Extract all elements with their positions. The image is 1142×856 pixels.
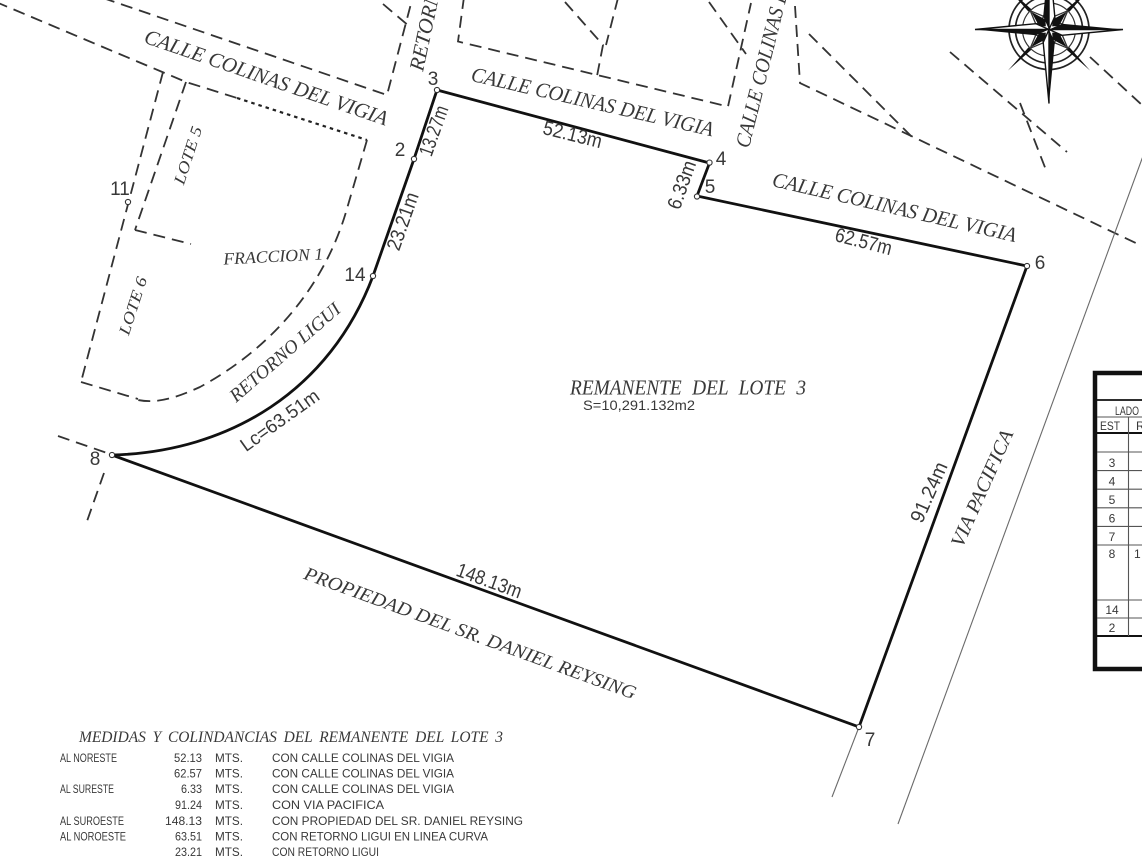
svg-text:13.27m: 13.27m <box>415 103 453 159</box>
svg-text:CON CALLE COLINAS DEL VIGIA: CON CALLE COLINAS DEL VIGIA <box>272 784 454 796</box>
svg-text:CON RETORNO LIGUI EN LINEA CUR: CON RETORNO LIGUI EN LINEA CURVA <box>272 832 488 844</box>
svg-text:3: 3 <box>1109 456 1116 470</box>
svg-text:CALLE COLINAS DEL VIGIA: CALLE COLINAS DEL VIGIA <box>770 167 1019 247</box>
svg-text:MTS.: MTS. <box>215 816 243 828</box>
svg-text:LADO: LADO <box>1115 404 1139 418</box>
svg-text:52.13: 52.13 <box>174 753 202 765</box>
svg-text:23.21: 23.21 <box>175 847 202 856</box>
svg-text:CON VIA PACIFICA: CON VIA PACIFICA <box>272 800 384 812</box>
svg-text:52.13m: 52.13m <box>541 117 605 153</box>
svg-text:S=10,291.132m2: S=10,291.132m2 <box>583 397 695 413</box>
svg-text:62.57: 62.57 <box>174 769 202 781</box>
svg-text:MTS.: MTS. <box>215 784 243 796</box>
svg-text:63.51: 63.51 <box>175 832 202 844</box>
svg-text:REMANENTE DEL LOTE 3: REMANENTE DEL LOTE 3 <box>569 376 806 400</box>
svg-text:LOTE 5: LOTE 5 <box>171 124 206 187</box>
svg-text:CON RETORNO LIGUI: CON RETORNO LIGUI <box>272 847 379 856</box>
svg-text:MTS.: MTS. <box>215 800 243 812</box>
svg-text:6.33: 6.33 <box>181 784 202 796</box>
svg-text:CALLE COLINAS DE: CALLE COLINAS DE <box>730 0 796 150</box>
svg-text:MTS.: MTS. <box>215 769 243 781</box>
svg-text:MEDIDAS Y COLINDANCIAS DEL REM: MEDIDAS Y COLINDANCIAS DEL REMANENTE DEL… <box>78 729 503 746</box>
svg-text:4: 4 <box>1109 475 1116 489</box>
svg-text:14: 14 <box>1105 603 1119 617</box>
svg-text:R: R <box>1136 419 1142 433</box>
svg-text:LOTE 6: LOTE 6 <box>116 275 151 338</box>
svg-text:AL SUROESTE: AL SUROESTE <box>60 816 124 828</box>
svg-text:7: 7 <box>865 730 876 751</box>
svg-text:148.13m: 148.13m <box>453 559 524 603</box>
svg-text:RETORNO LIGUI: RETORNO LIGUI <box>225 298 346 407</box>
svg-text:FRACCION 1: FRACCION 1 <box>222 244 324 268</box>
svg-text:EST: EST <box>1100 419 1121 433</box>
svg-text:AL SURESTE: AL SURESTE <box>60 784 114 796</box>
svg-text:MTS.: MTS. <box>215 832 243 844</box>
svg-text:5: 5 <box>705 177 716 198</box>
svg-text:6: 6 <box>1109 512 1116 526</box>
svg-text:11: 11 <box>110 179 130 200</box>
svg-text:AL NORESTE: AL NORESTE <box>60 753 117 765</box>
svg-text:148.13: 148.13 <box>165 816 202 828</box>
svg-text:14: 14 <box>344 265 366 286</box>
svg-text:2: 2 <box>1109 621 1116 635</box>
svg-text:3: 3 <box>428 69 439 90</box>
svg-text:6: 6 <box>1035 253 1046 274</box>
svg-text:2: 2 <box>395 140 406 161</box>
svg-text:CALLE COLINAS DEL VIGIA: CALLE COLINAS DEL VIGIA <box>141 24 391 130</box>
svg-text:4: 4 <box>716 149 727 170</box>
svg-text:8: 8 <box>1109 547 1116 561</box>
svg-text:5: 5 <box>1109 493 1116 507</box>
svg-text:8: 8 <box>90 449 101 470</box>
svg-text:CON CALLE COLINAS DEL VIGIA: CON CALLE COLINAS DEL VIGIA <box>272 769 454 781</box>
svg-text:7: 7 <box>1109 530 1116 544</box>
svg-text:MTS.: MTS. <box>215 847 243 856</box>
svg-text:62.57m: 62.57m <box>833 224 895 260</box>
svg-text:MTS.: MTS. <box>215 753 243 765</box>
svg-text:VIA PACIFICA: VIA PACIFICA <box>947 426 1019 551</box>
svg-text:CON CALLE COLINAS DEL VIGIA: CON CALLE COLINAS DEL VIGIA <box>272 753 454 765</box>
svg-text:23.21m: 23.21m <box>383 190 424 254</box>
svg-text:1: 1 <box>1134 547 1141 561</box>
svg-text:91.24: 91.24 <box>175 800 203 812</box>
svg-text:CON PROPIEDAD DEL SR. DANIEL R: CON PROPIEDAD DEL SR. DANIEL REYSING <box>272 816 523 828</box>
svg-text:AL NOROESTE: AL NOROESTE <box>60 832 126 844</box>
svg-text:6.33m: 6.33m <box>664 158 701 212</box>
svg-text:RETORNO: RETORNO <box>404 0 448 74</box>
